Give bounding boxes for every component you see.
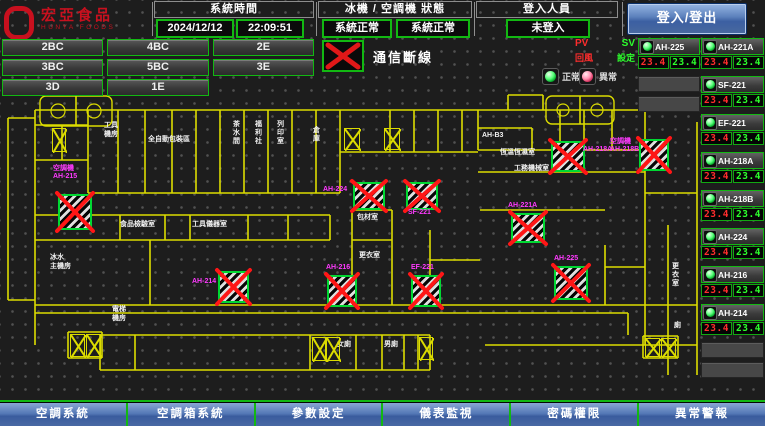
equipment-label-ah-224: AH-224: [323, 186, 347, 194]
unit-name: AH-221A: [718, 42, 753, 52]
floor-button-1e[interactable]: 1E: [107, 79, 208, 96]
equipment-icon-ah-216[interactable]: [327, 275, 357, 307]
ahu-status-value: 系統正常: [396, 19, 470, 38]
led-lamp: [706, 42, 715, 51]
room-label: AH-B3: [482, 132, 503, 141]
equipment-label-ah-214: AH-214: [192, 278, 216, 286]
unit-sf-221: SF-22123.423.4: [701, 76, 764, 107]
led-lamp: [706, 194, 715, 203]
pv-value: 23.4: [701, 94, 732, 107]
unit-name: EF-221: [718, 118, 746, 128]
pv-value: 23.4: [701, 56, 732, 69]
pv-value: 23.4: [701, 170, 732, 183]
unit-name: AH-216: [718, 270, 747, 280]
room-label: 全自動包裝區: [148, 136, 190, 145]
unit-values: 23.423.4: [701, 56, 764, 69]
stair-symbol: [661, 338, 676, 357]
equipment-icon-sf-221[interactable]: [406, 182, 438, 210]
unit-label-bar[interactable]: AH-225: [638, 38, 700, 55]
equipment-icon-ah-218b[interactable]: [639, 139, 669, 171]
sv-value: 23.4: [733, 132, 764, 145]
unit-ah-218b: AH-218B23.423.4: [701, 190, 764, 221]
unit-column-a: AH-22523.423.4: [638, 38, 700, 116]
status-led-icon: [703, 78, 717, 92]
unit-label-bar[interactable]: SF-221: [701, 76, 764, 93]
equipment-label-ah-216: AH-216: [326, 264, 350, 272]
company-logo: 宏亞食品 HUNYA FOODS: [4, 2, 152, 36]
floor-button-3d[interactable]: 3D: [2, 79, 103, 96]
unit-name: AH-225: [655, 42, 684, 52]
status-led-icon: [703, 268, 717, 282]
system-date-value: 2024/12/12: [156, 19, 234, 38]
header-bar: 宏亞食品 HUNYA FOODS 系統時間 2024/12/12 22:09:5…: [0, 0, 765, 38]
room-label: 更衣室: [359, 252, 380, 261]
system-time-section: 系統時間 2024/12/12 22:09:51: [154, 1, 314, 37]
logo-subname: HUNYA FOODS: [41, 24, 115, 32]
unit-label-bar[interactable]: AH-214: [701, 304, 764, 321]
floor-plan-map: 工具機房全自動包裝區茶水間福利社列印室倉庫AH-B3恆溫恆濕室工務機械室包材室更…: [0, 92, 706, 400]
logo-text: 宏亞食品 HUNYA FOODS: [41, 7, 115, 32]
pv-value: 23.4: [701, 208, 732, 221]
unit-ah-216: AH-21623.423.4: [701, 266, 764, 297]
unit-values: 23.423.4: [701, 132, 764, 145]
system-time-label: 系統時間: [154, 1, 314, 18]
equipment-label-ah-225: AH-225: [554, 255, 578, 263]
legend-abnormal: 異常: [579, 68, 617, 85]
led-lamp: [706, 80, 715, 89]
sv-value: 23.4: [733, 208, 764, 221]
room-label: 食品檢驗室: [120, 221, 155, 230]
empty-slot: [701, 362, 764, 378]
pv-value: 23.4: [701, 322, 732, 335]
legend-abnormal-label: 異常: [599, 70, 617, 83]
pv-sv-header: PV SV 回風 設定: [572, 38, 638, 64]
header-divider: [152, 2, 153, 36]
pv-value: 23.4: [701, 246, 732, 259]
unit-values: 23.423.4: [701, 246, 764, 259]
room-label: 倉庫: [311, 126, 320, 143]
sv-value: 23.4: [733, 170, 764, 183]
comm-offline-label: 通信斷線: [373, 47, 433, 66]
unit-values: 23.423.4: [701, 94, 764, 107]
comm-offline-legend: 通信斷線: [322, 40, 433, 72]
logo-name: 宏亞食品: [41, 7, 115, 24]
equipment-label-ah-218b: 空調機AH-218B: [610, 138, 639, 154]
nav-button[interactable]: 空調系統: [0, 403, 126, 426]
comm-offline-x-icon: [322, 40, 364, 72]
sv-value: 23.4: [733, 94, 764, 107]
led-lamp: [706, 308, 715, 317]
unit-ah-225: AH-22523.423.4: [638, 38, 700, 69]
normal-led-icon: [542, 68, 559, 85]
status-led-icon: [703, 192, 717, 206]
unit-name: AH-214: [718, 308, 747, 318]
unit-name: SF-221: [718, 80, 746, 90]
floor-button-2bc[interactable]: 2BC: [2, 39, 103, 56]
unit-label-bar[interactable]: AH-224: [701, 228, 764, 245]
room-label: 茶水間: [231, 120, 240, 146]
status-led-icon: [703, 306, 717, 320]
stair-symbol: [312, 337, 326, 361]
equipment-label-sf-221: SF-221: [408, 209, 431, 217]
unit-ah-214: AH-21423.423.4: [701, 304, 764, 335]
nav-button[interactable]: 參數設定: [254, 403, 382, 426]
status-led-icon: [703, 40, 717, 54]
floor-button-3e[interactable]: 3E: [213, 59, 314, 76]
legend-normal-label: 正常: [562, 70, 580, 83]
stair-symbol: [419, 337, 433, 360]
header-divider: [474, 2, 475, 36]
unit-ah-221a: AH-221A23.423.4: [701, 38, 764, 69]
room-label: 更衣室: [670, 262, 679, 288]
room-label: 福利社: [253, 120, 262, 146]
stair-symbol: [344, 128, 360, 150]
equipment-label-ah-215: 空調機AH-215: [53, 165, 77, 181]
equipment-icon-ah-225[interactable]: [554, 266, 588, 300]
room-label: 恆溫恆濕室: [500, 149, 535, 158]
unit-values: 23.423.4: [638, 56, 700, 69]
room-label: 廁: [674, 322, 681, 331]
sv-header: SV: [622, 38, 635, 49]
led-lamp: [706, 156, 715, 165]
unit-name: AH-218A: [718, 156, 753, 166]
stair-symbol: [384, 128, 400, 150]
unit-ah-224: AH-22423.423.4: [701, 228, 764, 259]
room-label: 冰水主機房: [50, 254, 71, 271]
equipment-icon-ah-215[interactable]: [58, 194, 92, 230]
pv-value: 23.4: [701, 132, 732, 145]
stair-symbol: [645, 338, 660, 357]
hmi-screen: 工具機房全自動包裝區茶水間福利社列印室倉庫AH-B3恆溫恆濕室工務機械室包材室更…: [0, 0, 765, 426]
floor-button-5bc[interactable]: 5BC: [107, 59, 208, 76]
floor-button-4bc[interactable]: 4BC: [107, 39, 208, 56]
unit-label-bar[interactable]: AH-218A: [701, 152, 764, 169]
unit-label-bar[interactable]: AH-216: [701, 266, 764, 283]
unit-name: AH-218B: [718, 194, 753, 204]
floor-button-grid: 2BC4BC2E3BC5BC3E3D1E: [2, 39, 314, 96]
pv-desc: 回風: [575, 51, 593, 64]
stair-symbol: [70, 334, 85, 357]
nav-button[interactable]: 空調箱系統: [126, 403, 254, 426]
sv-desc: 設定: [617, 51, 635, 64]
room-label: 男廁: [384, 341, 398, 350]
unit-label-bar[interactable]: AH-221A: [701, 38, 764, 55]
hunya-logo-icon: [4, 4, 34, 34]
sv-value: 23.4: [733, 56, 764, 69]
status-led-icon: [703, 154, 717, 168]
unit-label-bar[interactable]: EF-221: [701, 114, 764, 131]
sv-value: 23.4: [670, 56, 701, 69]
room-label: 電梯機房: [112, 306, 126, 323]
stair-symbol: [86, 334, 101, 357]
chiller-status-value: 系統正常: [322, 19, 392, 38]
equipment-icon-ah-224[interactable]: [353, 182, 385, 210]
system-clock-value: 22:09:51: [236, 19, 304, 38]
floor-button-3bc[interactable]: 3BC: [2, 59, 103, 76]
unit-label-bar[interactable]: AH-218B: [701, 190, 764, 207]
nav-button[interactable]: 儀表監視: [381, 403, 509, 426]
nav-button[interactable]: 異常警報: [637, 403, 765, 426]
empty-slot: [701, 342, 764, 358]
equipment-label-ah-221a: AH-221A: [508, 202, 537, 210]
status-led-icon: [703, 230, 717, 244]
sv-value: 23.4: [733, 284, 764, 297]
stair-symbol: [326, 337, 340, 361]
machine-status-section: 冰機 / 空調機 狀態 系統正常 系統正常: [318, 1, 472, 37]
floor-button-2e[interactable]: 2E: [213, 39, 314, 56]
equipment-label-ef-221: EF-221: [411, 264, 434, 272]
unit-column-b: AH-221A23.423.4SF-22123.423.4EF-22123.42…: [701, 38, 764, 382]
led-lamp: [643, 42, 652, 51]
equipment-icon-ah-221a[interactable]: [511, 213, 545, 243]
pv-value: 23.4: [701, 284, 732, 297]
sv-value: 23.4: [733, 322, 764, 335]
unit-values: 23.423.4: [701, 284, 764, 297]
equipment-icon-ah-214[interactable]: [218, 271, 249, 303]
room-label: 工務機械室: [514, 165, 549, 174]
login-logout-button[interactable]: 登入/登出: [627, 3, 747, 35]
header-divider: [622, 2, 623, 36]
login-person-section: 登入人員 未登入: [476, 1, 618, 37]
led-lamp: [706, 232, 715, 241]
unit-name: AH-224: [718, 232, 747, 242]
unit-values: 23.423.4: [701, 322, 764, 335]
login-person-label: 登入人員: [476, 1, 618, 18]
empty-slot: [638, 96, 700, 112]
sv-value: 23.4: [733, 246, 764, 259]
room-label: 列印室: [275, 120, 284, 146]
unit-values: 23.423.4: [701, 170, 764, 183]
unit-values: 23.423.4: [701, 208, 764, 221]
unit-ef-221: EF-22123.423.4: [701, 114, 764, 145]
pv-value: 23.4: [638, 56, 669, 69]
legend-normal: 正常: [542, 68, 580, 85]
bottom-button-bar: 空調系統空調箱系統參數設定儀表監視密碼權限異常警報: [0, 400, 765, 426]
status-led-icon: [640, 40, 654, 54]
empty-slot: [638, 76, 700, 92]
abnormal-led-icon: [579, 68, 596, 85]
equipment-icon-ef-221[interactable]: [411, 275, 441, 307]
nav-button[interactable]: 密碼權限: [509, 403, 637, 426]
login-person-value: 未登入: [506, 19, 590, 38]
machine-status-label: 冰機 / 空調機 狀態: [318, 1, 472, 18]
led-lamp: [706, 270, 715, 279]
unit-ah-218a: AH-218A23.423.4: [701, 152, 764, 183]
room-label: 包材室: [357, 214, 378, 223]
stair-symbol: [52, 128, 66, 152]
equipment-label-ah-218a: AH-218A: [583, 146, 612, 154]
room-label: 工具機房: [104, 122, 118, 139]
room-label: 工具儀器室: [192, 221, 227, 230]
equipment-icon-ah-218a[interactable]: [551, 141, 585, 172]
pv-header: PV: [575, 38, 588, 49]
header-divider: [316, 2, 317, 36]
status-led-icon: [703, 116, 717, 130]
led-lamp: [706, 118, 715, 127]
